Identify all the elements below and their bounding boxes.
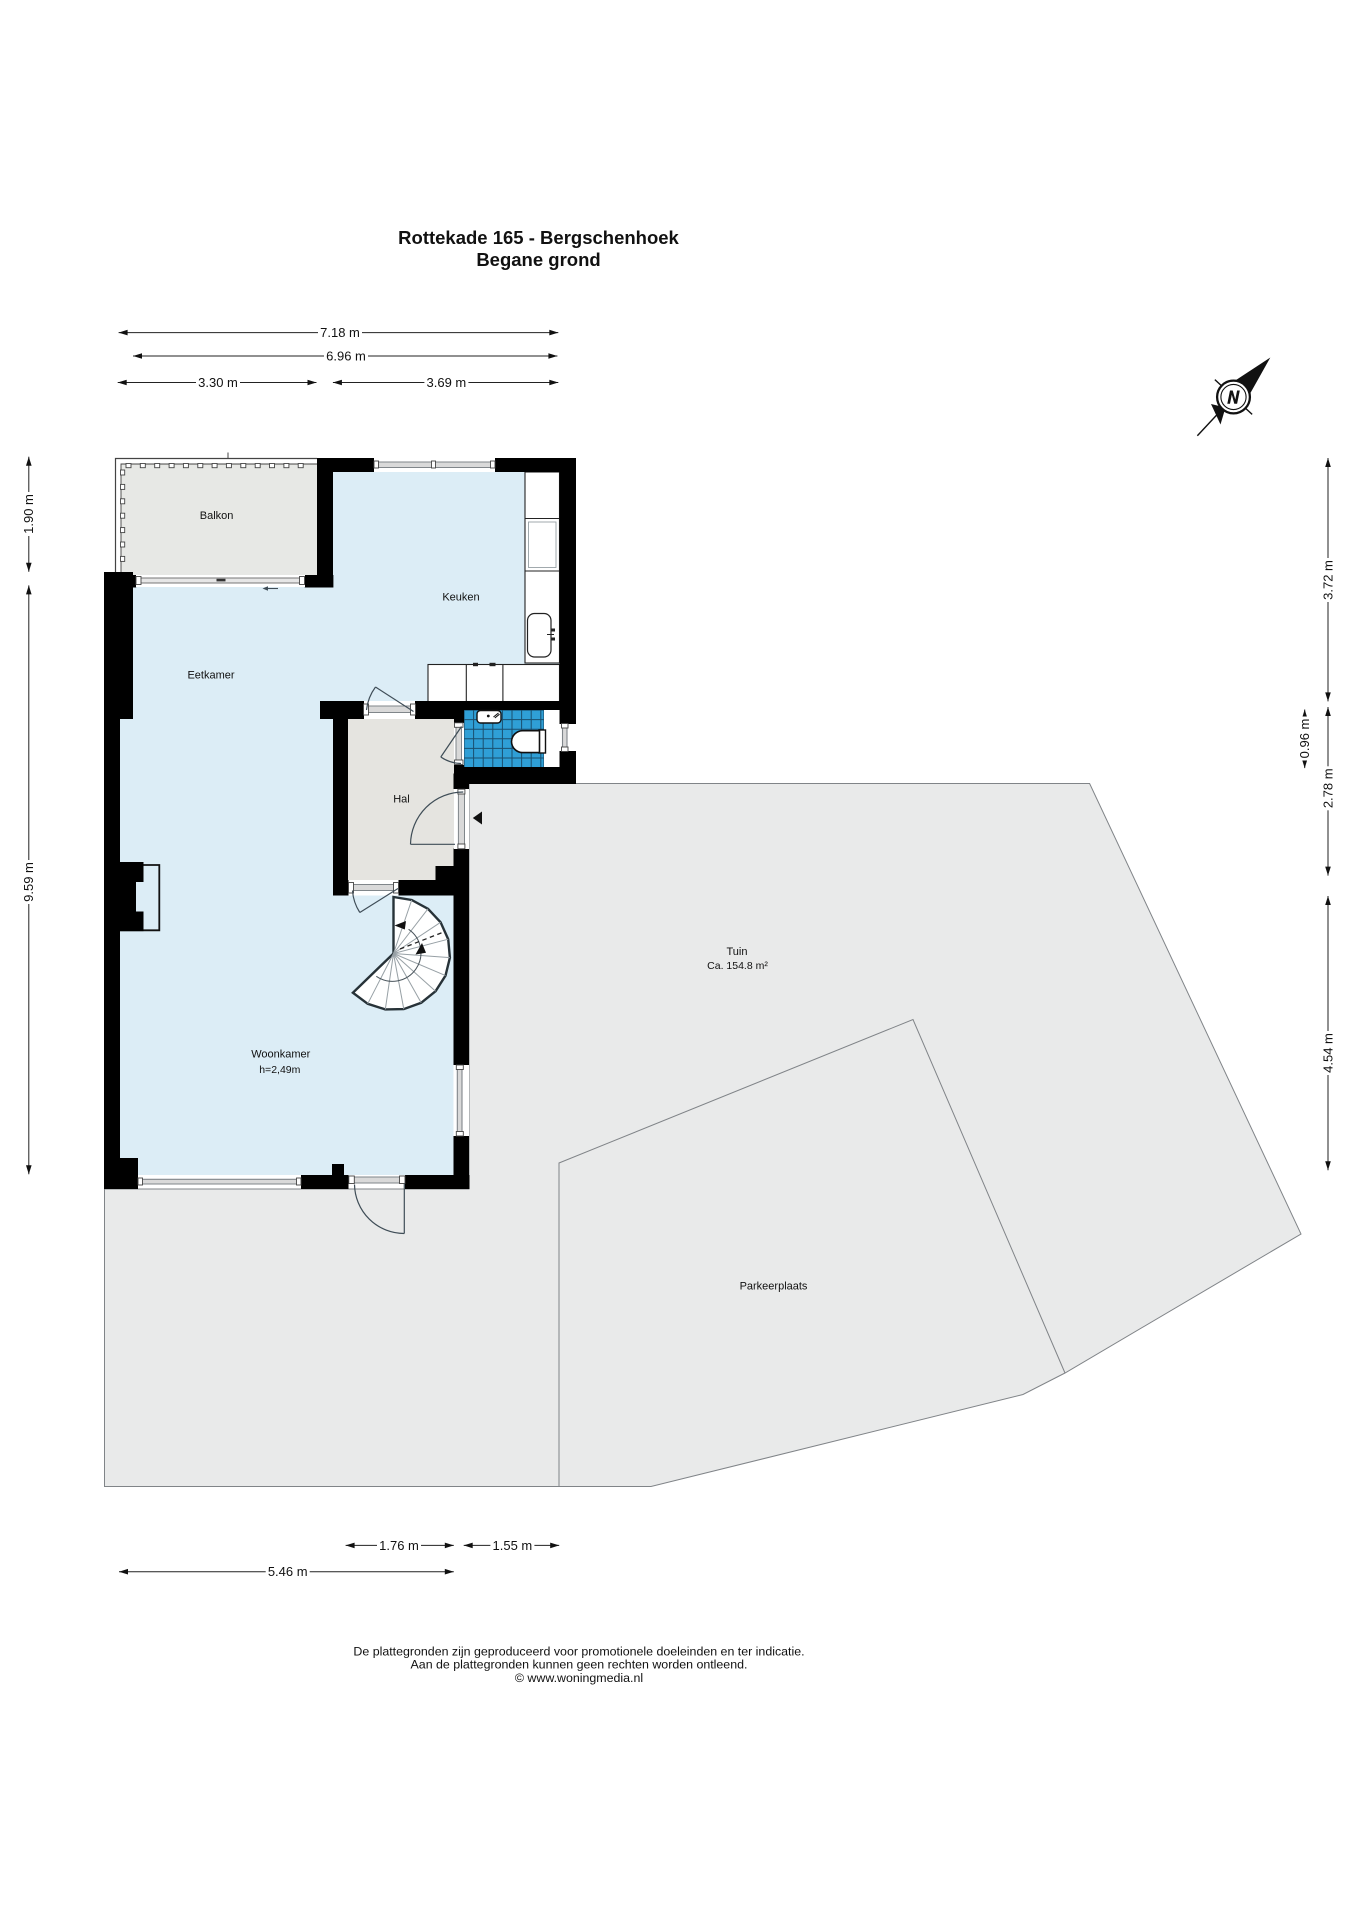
svg-text:3.30 m: 3.30 m — [198, 375, 238, 390]
svg-text:Woonkamer: Woonkamer — [251, 1049, 310, 1061]
svg-text:De plattegronden zijn geproduc: De plattegronden zijn geproduceerd voor … — [353, 1645, 804, 1659]
svg-text:Parkeerplaats: Parkeerplaats — [740, 1281, 808, 1293]
svg-text:5.46 m: 5.46 m — [268, 1564, 308, 1579]
svg-text:Balkon: Balkon — [200, 510, 234, 522]
svg-text:Ca. 154.8 m²: Ca. 154.8 m² — [707, 960, 768, 972]
svg-text:0.96 m: 0.96 m — [1297, 719, 1312, 759]
svg-text:1.55 m: 1.55 m — [493, 1538, 533, 1553]
svg-text:9.59 m: 9.59 m — [21, 862, 36, 902]
svg-text:4.54 m: 4.54 m — [1320, 1033, 1335, 1073]
svg-text:2.78 m: 2.78 m — [1320, 768, 1335, 808]
svg-text:Rottekade 165 - Bergschenhoek: Rottekade 165 - Bergschenhoek — [398, 227, 679, 248]
svg-text:h=2,49m: h=2,49m — [259, 1064, 300, 1076]
svg-text:7.18 m: 7.18 m — [320, 325, 360, 340]
svg-text:Aan de plattegronden kunnen ge: Aan de plattegronden kunnen geen rechten… — [411, 1658, 748, 1672]
svg-text:6.96 m: 6.96 m — [326, 348, 366, 363]
svg-text:Tuin: Tuin — [727, 946, 748, 958]
svg-text:3.69 m: 3.69 m — [427, 375, 467, 390]
svg-text:Keuken: Keuken — [442, 592, 479, 604]
svg-text:1.76 m: 1.76 m — [379, 1538, 419, 1553]
svg-text:Hal: Hal — [393, 794, 410, 806]
svg-text:Begane grond: Begane grond — [476, 249, 600, 270]
svg-text:© www.woningmedia.nl: © www.woningmedia.nl — [515, 1671, 643, 1685]
svg-text:3.72 m: 3.72 m — [1320, 560, 1335, 600]
svg-text:Eetkamer: Eetkamer — [187, 670, 234, 682]
svg-text:1.90 m: 1.90 m — [21, 494, 36, 534]
